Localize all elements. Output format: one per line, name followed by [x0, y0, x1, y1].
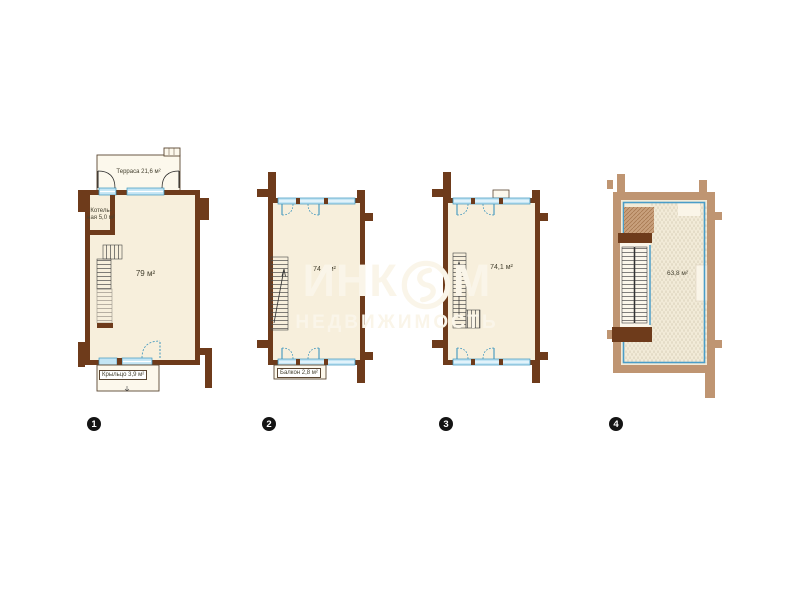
boiler-room-label: Котель- ная 5,0 м²: [86, 208, 116, 222]
floor-plan-4: 63,8 м²: [585, 140, 735, 405]
floor-plan-1: Терраса 21,6 м² Котель- ная 5,0 м² 79 м²…: [70, 140, 220, 405]
floor-plans-sheet: Терраса 21,6 м² Котель- ная 5,0 м² 79 м²…: [0, 0, 800, 600]
floor-number-badge-2: 2: [262, 417, 276, 431]
porch-label: Крыльцо 3,9 м²: [99, 370, 147, 380]
area-label-floor-4: 63,8 м²: [655, 270, 700, 277]
floor-plan-3: 74,1 м²: [415, 140, 565, 405]
area-label-floor-2: 74,4 м²: [302, 266, 347, 274]
floor-number-badge-4: 4: [609, 417, 623, 431]
balcony-label: Балкон 2,8 м²: [277, 368, 321, 378]
floor-plan-3-drawing: [415, 140, 565, 405]
floor-number-badge-3: 3: [439, 417, 453, 431]
area-label-floor-3: 74,1 м²: [479, 264, 524, 272]
terrace-label: Терраса 21,6 м²: [97, 169, 180, 176]
floor-number-badge-1: 1: [87, 417, 101, 431]
floor-plan-2: 74,4 м² Балкон 2,8 м²: [240, 140, 390, 405]
area-label-floor-1: 79 м²: [123, 269, 168, 278]
